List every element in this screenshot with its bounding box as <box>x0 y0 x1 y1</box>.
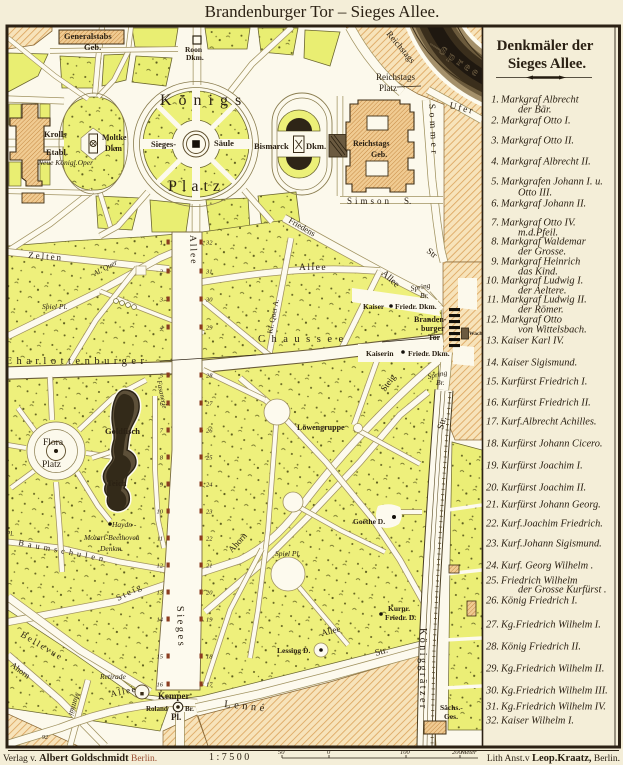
svg-text:Geb.: Geb. <box>84 42 101 52</box>
svg-text:16.: 16. <box>486 398 499 409</box>
svg-text:Spiel Pl.: Spiel Pl. <box>42 302 68 311</box>
svg-text:23: 23 <box>206 509 213 516</box>
svg-text:10.: 10. <box>486 276 499 287</box>
svg-text:32: 32 <box>205 240 213 247</box>
svg-text:Kg.Friedrich Wilhelm IV.: Kg.Friedrich Wilhelm IV. <box>500 702 606 713</box>
svg-text:Kurf. Georg Wilhelm .: Kurf. Georg Wilhelm . <box>500 561 593 572</box>
svg-text:Bismarck: Bismarck <box>254 141 289 151</box>
svg-text:14: 14 <box>157 617 164 624</box>
svg-text:6.: 6. <box>491 199 499 210</box>
svg-text:15: 15 <box>157 654 164 661</box>
svg-text:12.: 12. <box>486 315 499 326</box>
svg-text:Kaiser Karl IV.: Kaiser Karl IV. <box>500 336 564 347</box>
svg-text:28: 28 <box>206 373 213 380</box>
svg-text:Spiel Pl.: Spiel Pl. <box>275 549 301 558</box>
svg-text:Säule: Säule <box>214 138 234 148</box>
svg-text:Kurfürst Friedrich II.: Kurfürst Friedrich II. <box>500 398 591 409</box>
svg-text:17.: 17. <box>486 417 499 428</box>
svg-text:Tor: Tor <box>428 333 441 342</box>
svg-text:Platz: Platz <box>42 460 61 470</box>
svg-text:Geb.: Geb. <box>371 150 387 159</box>
svg-text:Dkm.: Dkm. <box>186 53 204 62</box>
svg-text:Dkm.: Dkm. <box>306 141 326 151</box>
svg-text:Haydn -: Haydn - <box>111 520 137 529</box>
svg-text:Kurfürst Johann Georg.: Kurfürst Johann Georg. <box>500 500 601 511</box>
svg-text:Sieges: Sieges <box>174 606 186 649</box>
svg-text:16: 16 <box>157 682 164 689</box>
svg-text:22.: 22. <box>486 519 499 530</box>
svg-text:11: 11 <box>157 536 163 543</box>
svg-text:Verlag v. Albert Goldschmidt B: Verlag v. Albert Goldschmidt Berlin. <box>3 753 157 764</box>
svg-text:22: 22 <box>206 536 213 543</box>
svg-text:Sieges-: Sieges- <box>151 139 176 149</box>
svg-text:1: 1 <box>160 240 163 247</box>
svg-text:Charlottenburger: Charlottenburger <box>5 356 149 367</box>
svg-text:Allee: Allee <box>299 263 327 273</box>
svg-text:Kurf.Johann Sigismund.: Kurf.Johann Sigismund. <box>500 539 602 550</box>
svg-text:Denkmäler der: Denkmäler der <box>497 38 594 54</box>
svg-text:17: 17 <box>206 682 213 689</box>
svg-text:Flora: Flora <box>43 438 64 448</box>
svg-text:29.: 29. <box>486 664 499 675</box>
svg-text:Kurfürst Johann Cicero.: Kurfürst Johann Cicero. <box>500 439 603 450</box>
svg-text:König Friedrich II.: König Friedrich II. <box>500 642 581 653</box>
svg-text:König Friedrich I.: König Friedrich I. <box>500 596 577 607</box>
svg-text:Brandenburger Tor – Sieges All: Brandenburger Tor – Sieges Allee. <box>205 2 440 21</box>
svg-text:Platz: Platz <box>168 178 225 195</box>
svg-text:Kurpr.: Kurpr. <box>388 604 410 613</box>
svg-text:Denkm.: Denkm. <box>99 544 123 553</box>
svg-text:7.: 7. <box>491 218 499 229</box>
svg-text:Lessing D.: Lessing D. <box>277 646 310 655</box>
svg-text:21: 21 <box>206 563 213 570</box>
svg-text:18: 18 <box>206 654 213 661</box>
svg-text:Reichstags: Reichstags <box>353 139 389 148</box>
svg-text:Etabl.: Etabl. <box>46 147 68 157</box>
svg-text:20.: 20. <box>486 483 499 494</box>
svg-text:Simson: Simson <box>347 196 392 206</box>
svg-text:Königs: Königs <box>160 92 248 109</box>
svg-text:25.: 25. <box>486 576 499 587</box>
svg-text:31: 31 <box>205 269 213 276</box>
svg-text:Friedr. Dkm.: Friedr. Dkm. <box>408 349 450 358</box>
svg-text:9.: 9. <box>491 257 499 268</box>
svg-text:Kurfürst Friedrich I.: Kurfürst Friedrich I. <box>500 377 587 388</box>
svg-text:Retirade: Retirade <box>99 672 126 681</box>
svg-text:31.: 31. <box>485 702 499 713</box>
svg-text:3.: 3. <box>490 136 499 147</box>
svg-text:Lith Anst.v Leop.Kraatz, Berli: Lith Anst.v Leop.Kraatz, Berlin. <box>487 753 620 764</box>
svg-text:1.: 1. <box>491 95 499 106</box>
svg-text:26: 26 <box>206 428 213 435</box>
svg-text:23.: 23. <box>486 539 499 550</box>
svg-text:19.: 19. <box>486 461 499 472</box>
svg-text:12: 12 <box>157 563 164 570</box>
svg-text:4.: 4. <box>491 157 499 168</box>
svg-text:Dkm: Dkm <box>105 144 122 153</box>
svg-text:Reichstags: Reichstags <box>376 72 415 82</box>
svg-text:27.: 27. <box>486 620 499 631</box>
svg-text:20: 20 <box>206 590 213 597</box>
svg-text:Krolls: Krolls <box>44 129 67 139</box>
svg-text:Kaiserin: Kaiserin <box>366 349 394 358</box>
svg-text:Roland: Roland <box>146 705 168 713</box>
svg-text:Platz: Platz <box>379 83 397 93</box>
svg-text:Sieges Allee.: Sieges Allee. <box>508 56 587 72</box>
svg-text:24: 24 <box>206 482 213 489</box>
svg-text:30.: 30. <box>485 686 499 697</box>
svg-text:19: 19 <box>206 617 213 624</box>
svg-text:14.: 14. <box>486 358 499 369</box>
svg-text:30: 30 <box>205 297 213 304</box>
svg-text:Ges.: Ges. <box>444 712 458 721</box>
svg-text:15.: 15. <box>486 377 499 388</box>
svg-text:Kemper: Kemper <box>158 691 190 701</box>
svg-text:1:7500: 1:7500 <box>209 752 252 763</box>
svg-text:13: 13 <box>157 590 164 597</box>
svg-text:Br.: Br. <box>436 378 445 387</box>
svg-text:Friedr. D.: Friedr. D. <box>385 613 416 622</box>
svg-text:Br.: Br. <box>420 291 429 300</box>
svg-text:27: 27 <box>206 401 213 408</box>
svg-text:18.: 18. <box>486 439 499 450</box>
svg-text:28.: 28. <box>486 642 499 653</box>
svg-text:Br.: Br. <box>185 705 194 713</box>
svg-text:92: 92 <box>42 735 48 741</box>
svg-text:11.: 11. <box>487 295 499 306</box>
svg-text:Mozart-Beethoven: Mozart-Beethoven <box>83 533 140 542</box>
svg-text:Kurfürst Joachim II.: Kurfürst Joachim II. <box>500 483 586 494</box>
svg-text:Kaiser Sigismund.: Kaiser Sigismund. <box>500 358 577 369</box>
svg-text:burger: burger <box>421 324 445 333</box>
svg-text:Kurfürst Joachim I.: Kurfürst Joachim I. <box>500 461 583 472</box>
svg-text:5.: 5. <box>491 177 499 188</box>
svg-text:Königgrätzer: Königgrätzer <box>417 628 428 711</box>
svg-text:Kg.Friedrich Wilhelm I.: Kg.Friedrich Wilhelm I. <box>500 620 601 631</box>
svg-text:21.: 21. <box>486 500 499 511</box>
svg-text:Markgraf Otto I.: Markgraf Otto I. <box>500 116 571 127</box>
svg-text:Allee: Allee <box>187 235 198 266</box>
svg-text:29: 29 <box>206 325 213 332</box>
svg-text:Sächs.-: Sächs.- <box>440 703 463 712</box>
svg-text:24.: 24. <box>486 561 499 572</box>
svg-text:Branden-: Branden- <box>414 315 447 324</box>
svg-text:25: 25 <box>206 455 213 462</box>
svg-text:der Bär.: der Bär. <box>518 105 551 116</box>
svg-text:Friedr. Dkm.: Friedr. Dkm. <box>395 302 437 311</box>
svg-text:Kaiser: Kaiser <box>363 302 385 311</box>
svg-text:Markgraf Albrecht II.: Markgraf Albrecht II. <box>500 157 591 168</box>
svg-text:S.: S. <box>404 196 411 206</box>
svg-text:Kg.Friedrich Wilhelm II.: Kg.Friedrich Wilhelm II. <box>500 664 604 675</box>
svg-text:Goethe D.: Goethe D. <box>353 517 385 526</box>
svg-text:Moltke: Moltke <box>102 133 127 142</box>
svg-text:10: 10 <box>157 509 164 516</box>
svg-text:Neue Königl.Oper: Neue Königl.Oper <box>37 158 93 167</box>
svg-text:der Grosse Kurfürst .: der Grosse Kurfürst . <box>518 585 607 596</box>
svg-text:Otto III.: Otto III. <box>518 188 552 199</box>
svg-text:Kurf.Albrecht Achilles.: Kurf.Albrecht Achilles. <box>500 417 597 428</box>
svg-text:Markgrafen Johann I. u.: Markgrafen Johann I. u. <box>500 177 603 188</box>
svg-text:8.: 8. <box>491 237 499 248</box>
svg-text:Kg.Friedrich Wilhelm III.: Kg.Friedrich Wilhelm III. <box>500 686 608 697</box>
svg-text:Markgraf Otto II.: Markgraf Otto II. <box>500 136 574 147</box>
svg-text:13.: 13. <box>486 336 499 347</box>
svg-text:Generalstabs: Generalstabs <box>64 31 112 41</box>
svg-text:Chaussee: Chaussee <box>258 334 350 345</box>
svg-text:Löwengruppe: Löwengruppe <box>297 423 345 432</box>
svg-text:Goldfisch: Goldfisch <box>105 426 140 436</box>
svg-text:von Wittelsbach.: von Wittelsbach. <box>518 325 587 336</box>
svg-text:2.: 2. <box>491 116 499 127</box>
svg-text:32.: 32. <box>485 716 499 727</box>
svg-text:Pl.: Pl. <box>171 712 181 722</box>
svg-text:Markgraf Johann II.: Markgraf Johann II. <box>500 199 586 210</box>
svg-text:26.: 26. <box>486 596 499 607</box>
svg-text:Teich: Teich <box>107 478 127 488</box>
svg-text:Kurf.Joachim Friedrich.: Kurf.Joachim Friedrich. <box>500 519 603 530</box>
svg-text:Kaiser Wilhelm I.: Kaiser Wilhelm I. <box>500 716 574 727</box>
